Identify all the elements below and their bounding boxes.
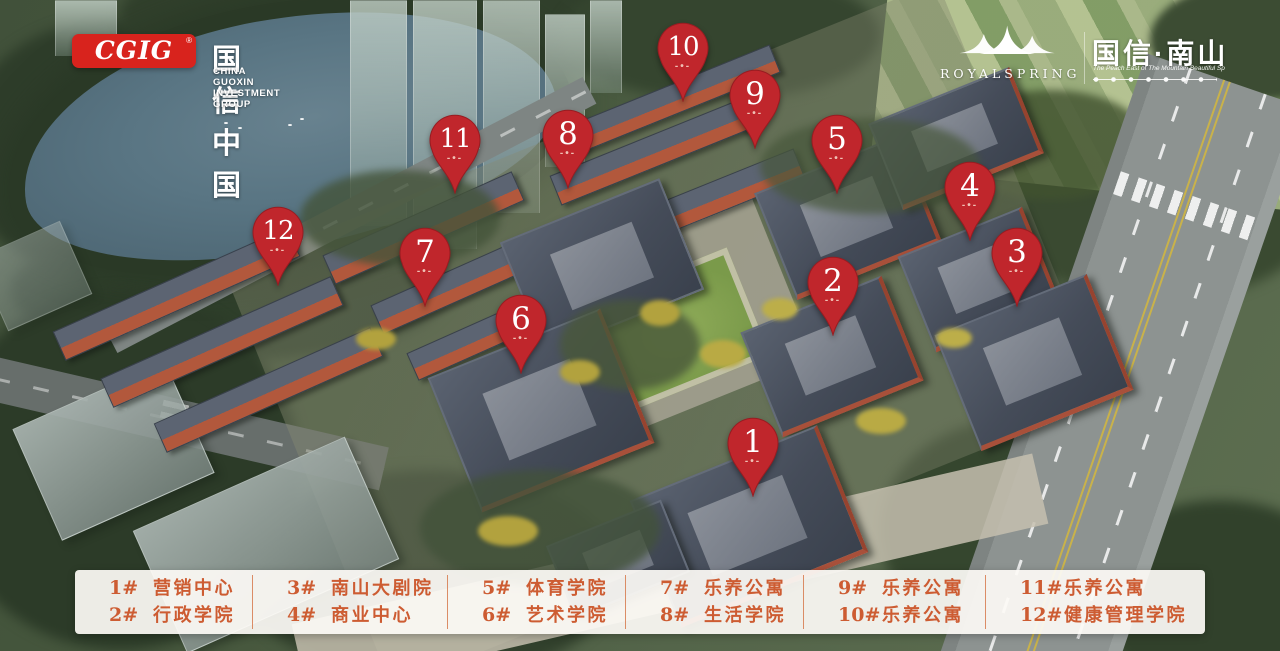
- pin-ornament: -•-: [806, 295, 860, 306]
- pin-ornament: -•-: [810, 153, 864, 164]
- legend-column-6: 11#乐养公寓 12#健康管理学院: [985, 575, 1205, 629]
- legend-item-number: 11#: [1020, 575, 1064, 602]
- legend-item-4: 4#商业中心: [287, 602, 447, 629]
- royalspring-brand-en: ROYALSPRING: [940, 66, 1076, 81]
- legend-item-number: 12#: [1020, 602, 1064, 629]
- legend-item-label: 乐养公寓: [882, 578, 964, 598]
- legend-item-11: 11#乐养公寓: [1020, 575, 1205, 602]
- map-pin-4: 4 -•-: [943, 159, 997, 241]
- map-pin-11: 11 -•-: [428, 112, 482, 194]
- legend-item-number: 3#: [287, 575, 331, 602]
- legend-column-2: 3#南山大剧院 4#商业中心: [252, 575, 447, 629]
- pin-ornament: -•-: [251, 245, 305, 256]
- legend-item-label: 南山大剧院: [331, 578, 434, 598]
- legend-item-label: 乐养公寓: [882, 605, 964, 625]
- cgig-name-cn: 国信中国: [212, 36, 243, 204]
- legend-item-label: 行政学院: [153, 605, 235, 625]
- legend-item-label: 体育学院: [526, 578, 608, 598]
- legend-item-6: 6#艺术学院: [482, 602, 625, 629]
- legend-item-number: 5#: [482, 575, 526, 602]
- legend-item-number: 1#: [109, 575, 153, 602]
- legend-item-label: 生活学院: [704, 605, 786, 625]
- map-pin-9: 9 -•-: [728, 67, 782, 149]
- map-pin-5: 5 -•-: [810, 112, 864, 194]
- brand-divider: [1084, 32, 1085, 84]
- legend-item-label: 艺术学院: [526, 605, 608, 625]
- chain-ornament-icon: [1093, 75, 1217, 84]
- pin-ornament: -•-: [541, 148, 595, 159]
- pin-ornament: -•-: [728, 108, 782, 119]
- pin-ornament: -•-: [398, 266, 452, 277]
- legend-item-12: 12#健康管理学院: [1020, 602, 1205, 629]
- legend-item-8: 8#生活学院: [660, 602, 803, 629]
- legend-item-3: 3#南山大剧院: [287, 575, 447, 602]
- legend-item-number: 10#: [838, 602, 882, 629]
- pin-ornament: -•-: [990, 266, 1044, 277]
- legend-item-number: 2#: [109, 602, 153, 629]
- legend-item-5: 5#体育学院: [482, 575, 625, 602]
- legend-column-5: 9#乐养公寓 10#乐养公寓: [803, 575, 985, 629]
- legend-column-4: 7#乐养公寓 8#生活学院: [625, 575, 803, 629]
- map-pin-12: 12 -•-: [251, 204, 305, 286]
- map-pin-10: 10 -•-: [656, 20, 710, 102]
- cgig-logo-box: CGIG ®: [72, 34, 196, 68]
- registered-trademark-icon: ®: [186, 36, 192, 45]
- cgig-logo-text: CGIG: [95, 36, 173, 65]
- legend-item-number: 6#: [482, 602, 526, 629]
- pin-ornament: -•-: [943, 200, 997, 211]
- legend-bar: 1#营销中心 2#行政学院 3#南山大剧院 4#商业中心 5#体育学院 6#艺术…: [75, 570, 1205, 634]
- legend-item-2: 2#行政学院: [109, 602, 252, 629]
- legend-column-3: 5#体育学院 6#艺术学院: [447, 575, 625, 629]
- royalspring-tagline: The Peach East of The Mountain Beautiful…: [1093, 65, 1225, 72]
- pin-ornament: -•-: [726, 456, 780, 467]
- legend-item-label: 乐养公寓: [1064, 578, 1146, 598]
- legend-item-label: 健康管理学院: [1064, 605, 1187, 625]
- map-pin-7: 7 -•-: [398, 225, 452, 307]
- map-pin-2: 2 -•-: [806, 254, 860, 336]
- legend-item-7: 7#乐养公寓: [660, 575, 803, 602]
- legend-item-1: 1#营销中心: [109, 575, 252, 602]
- legend-item-number: 7#: [660, 575, 704, 602]
- legend-item-number: 8#: [660, 602, 704, 629]
- legend-item-label: 乐养公寓: [704, 578, 786, 598]
- pin-ornament: -•-: [494, 333, 548, 344]
- legend-item-number: 4#: [287, 602, 331, 629]
- mountain-peaks-icon: [958, 22, 1058, 56]
- royalspring-logo: ROYALSPRING 国信·南山 The Peach East of The …: [940, 20, 1240, 95]
- pin-ornament: -•-: [428, 153, 482, 164]
- legend-item-label: 营销中心: [153, 578, 235, 598]
- pin-ornament: -•-: [656, 61, 710, 72]
- legend-item-number: 9#: [838, 575, 882, 602]
- map-pin-6: 6 -•-: [494, 292, 548, 374]
- map-pin-3: 3 -•-: [990, 225, 1044, 307]
- site-plan-rendering: CGIG ® 国信中国 CHINA GUOXIN INVESTMENT GROU…: [0, 0, 1280, 651]
- cgig-name-en: CHINA GUOXIN INVESTMENT GROUP: [213, 66, 280, 110]
- legend-item-10: 10#乐养公寓: [838, 602, 985, 629]
- legend-item-9: 9#乐养公寓: [838, 575, 985, 602]
- legend-column-1: 1#营销中心 2#行政学院: [75, 575, 252, 629]
- map-pin-8: 8 -•-: [541, 107, 595, 189]
- map-pin-1: 1 -•-: [726, 415, 780, 497]
- legend-item-label: 商业中心: [331, 605, 413, 625]
